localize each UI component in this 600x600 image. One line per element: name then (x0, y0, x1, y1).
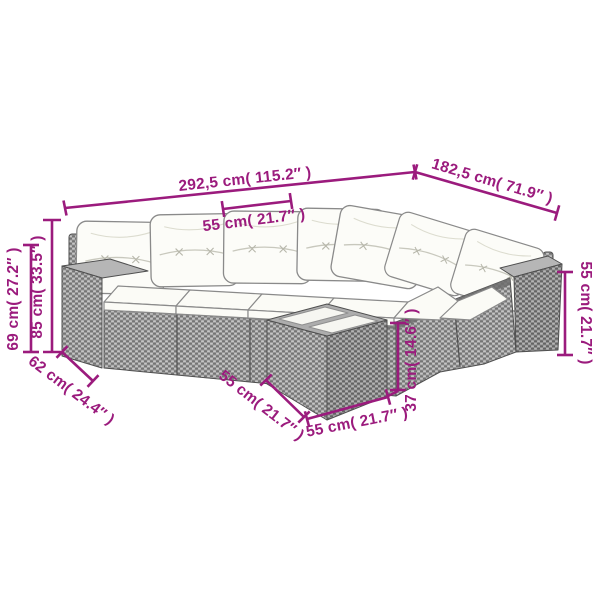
dimension-label-table-height: 37 cm( 14.6″ ) (403, 308, 421, 411)
product-illustration (0, 0, 600, 600)
product-dimension-diagram: 292,5 cm( 115.2″ ) 182,5 cm( 71.9″ ) 55 … (0, 0, 600, 600)
dimension-label-height-armrest: 55 cm( 21.7″ ) (576, 261, 594, 364)
table-left-face (267, 320, 327, 420)
sofa-illustration (62, 204, 562, 420)
dimension-label-height-secondary: 69 cm( 27.2″ ) (5, 247, 23, 350)
dimension-label-height-back: 85 cm( 33.5″ ) (29, 235, 47, 338)
